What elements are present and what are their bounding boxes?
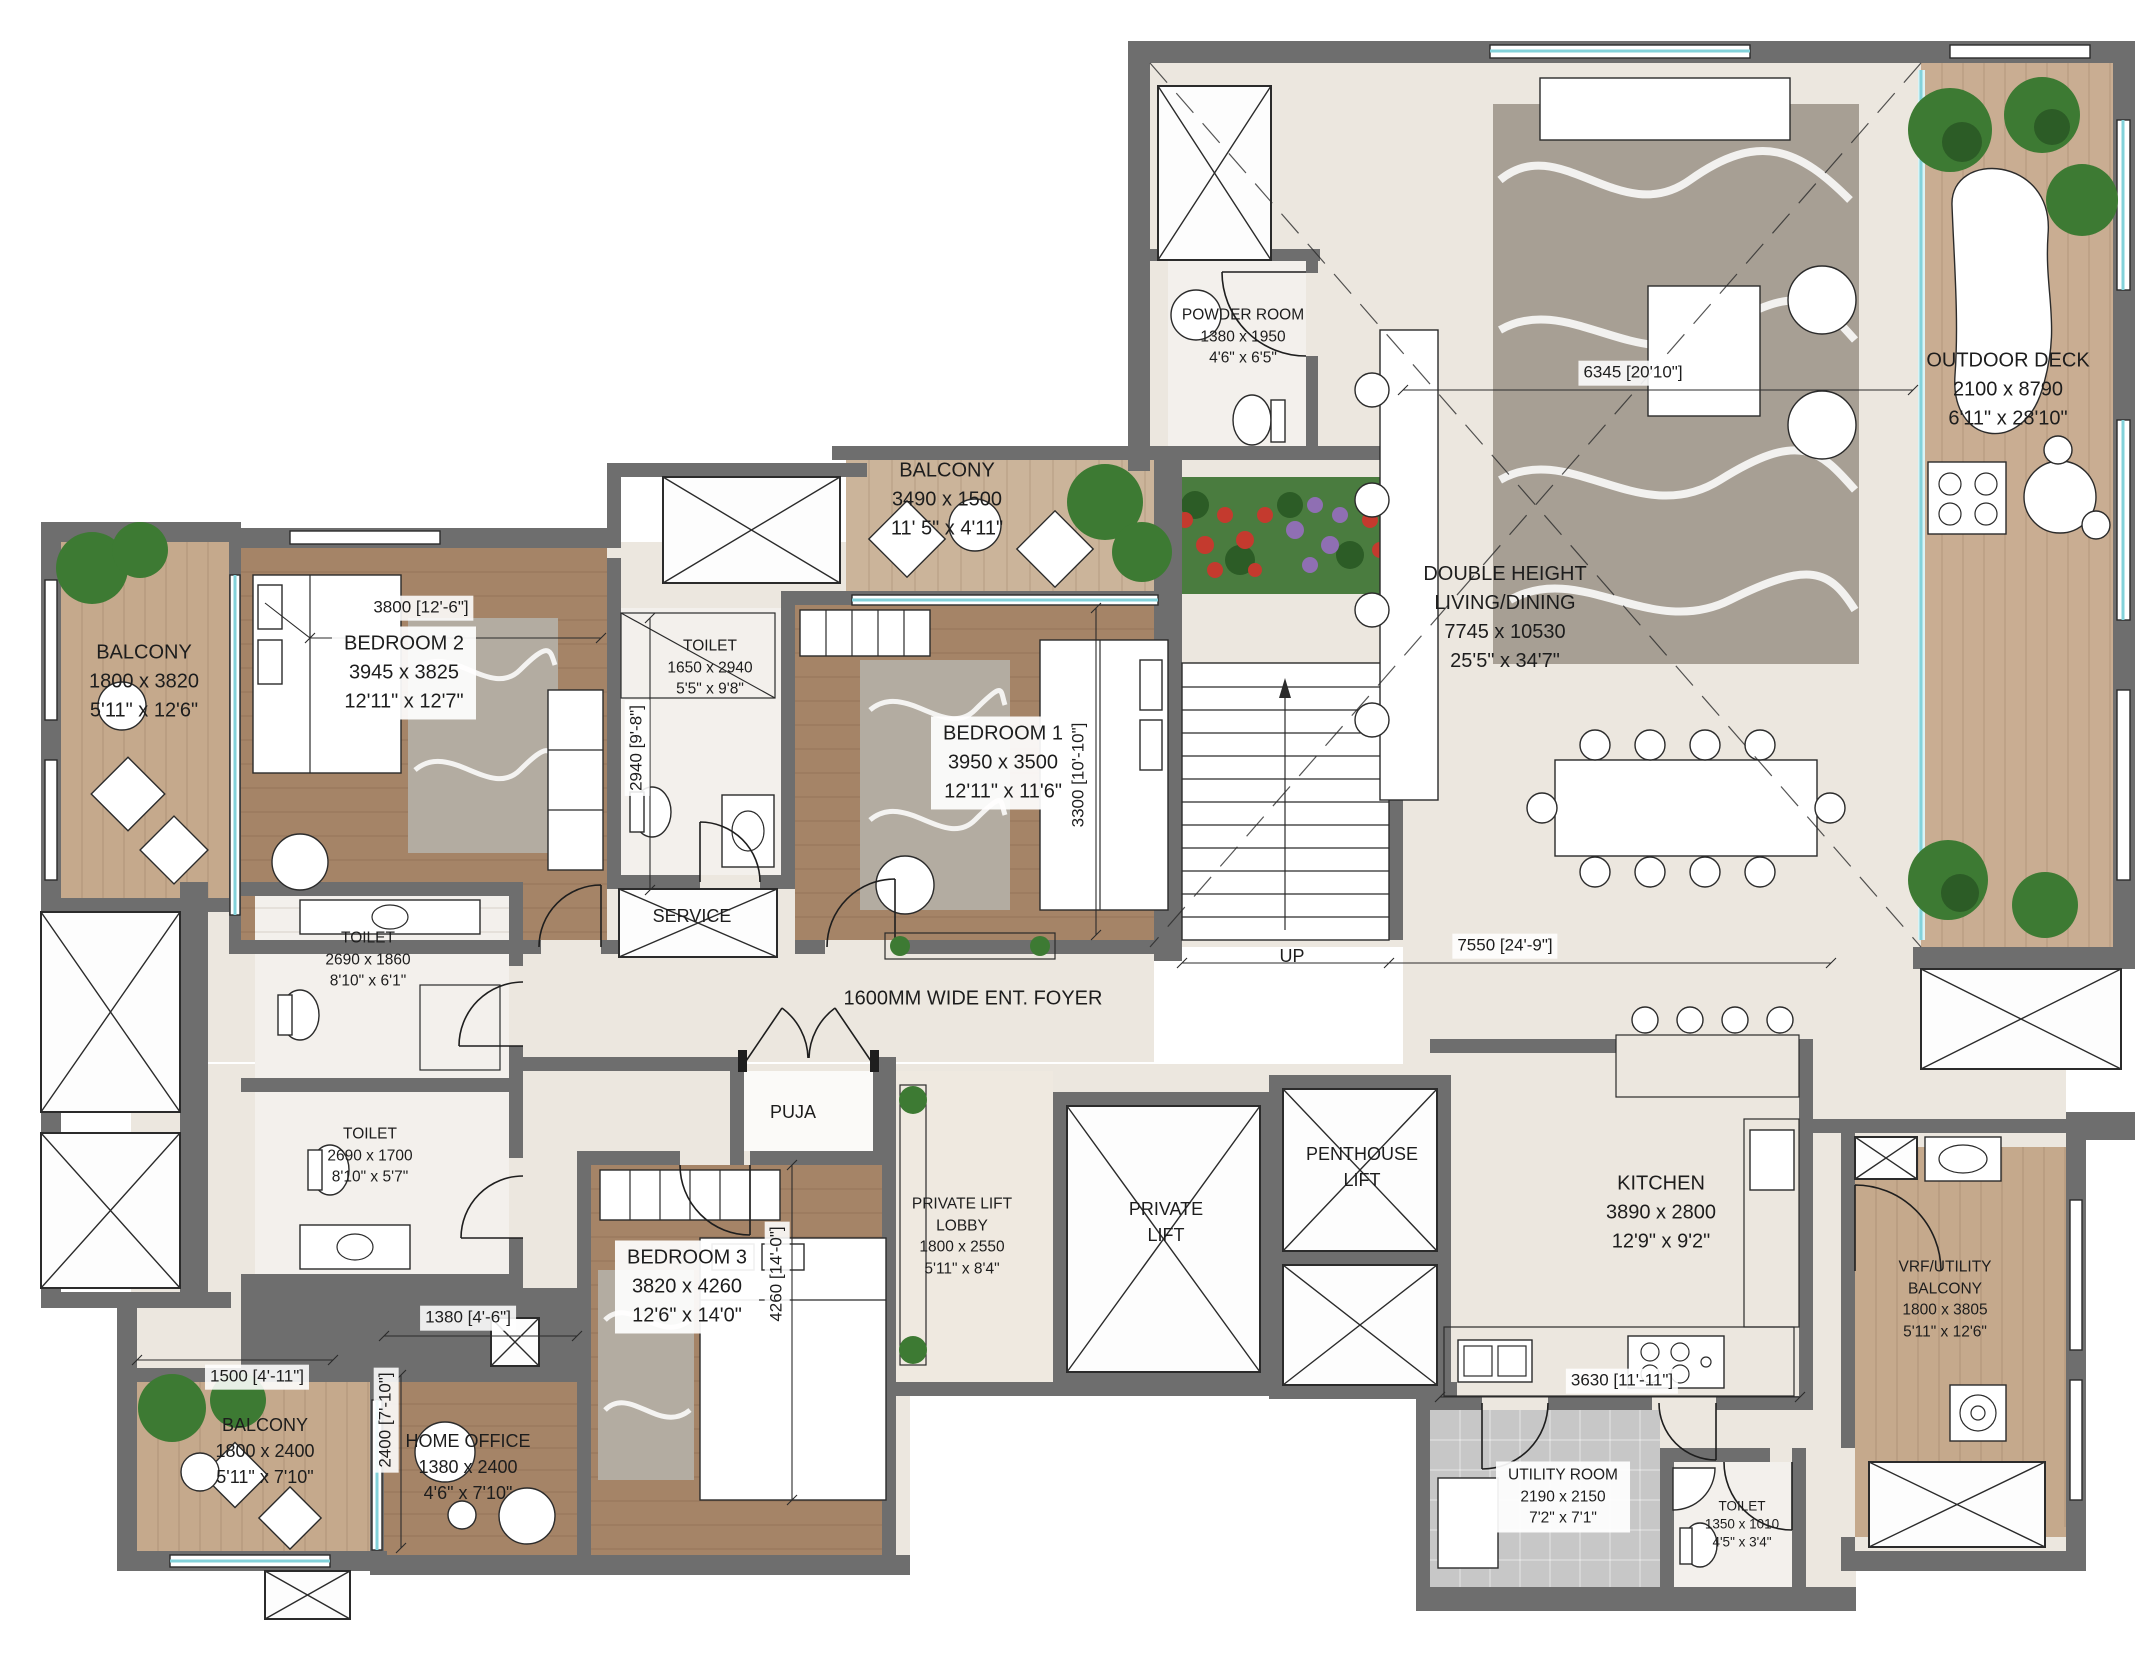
bedroom2-furniture xyxy=(253,575,603,890)
stool xyxy=(1767,1007,1793,1033)
dining-chair xyxy=(1635,730,1665,760)
pillow xyxy=(1140,720,1162,770)
tree xyxy=(2046,164,2118,236)
room-label-private-lift: PRIVATELIFT xyxy=(1129,1196,1203,1248)
dim-label-2400: 2400 [7'-10"] xyxy=(374,1367,399,1472)
label-up: UP xyxy=(1279,943,1304,969)
room-label-balcony-top: BALCONY3490 x 150011' 5" x 4'11" xyxy=(891,457,1003,544)
duct-shaft xyxy=(1855,1137,1917,1179)
dim-label-1380: 1380 [4'-6"] xyxy=(420,1306,516,1331)
dim-label-7550: 7550 [24'-9"] xyxy=(1452,934,1557,959)
duct-shaft xyxy=(1158,86,1271,260)
table xyxy=(181,1453,219,1491)
room-label-outdoor-deck: OUTDOOR DECK2100 x 87906'11" x 28'10" xyxy=(1926,347,2089,434)
dim-label-4260: 4260 [14'-0"] xyxy=(765,1221,790,1326)
room-label-vrf-balcony: VRF/UTILITYBALCONY 1800 x 38055'11" x 12… xyxy=(1898,1257,1991,1344)
room-label-bedroom-1: BEDROOM 13950 x 350012'11" x 11'6" xyxy=(931,717,1075,810)
dining-chair xyxy=(1580,730,1610,760)
wardrobe xyxy=(548,690,603,870)
lift-shaft xyxy=(1283,1265,1437,1385)
dining-chair xyxy=(1635,857,1665,887)
dim-label-3800: 3800 [12'-6"] xyxy=(368,596,473,621)
stool xyxy=(1722,1007,1748,1033)
label-entry-foyer: 1600MM WIDE ENT. FOYER xyxy=(844,985,1103,1014)
plant xyxy=(890,936,910,956)
fridge xyxy=(1750,1130,1794,1190)
plant xyxy=(1030,936,1050,956)
room-label-balcony-left: BALCONY1800 x 38205'11" x 12'6" xyxy=(89,639,199,726)
pillow xyxy=(258,640,282,684)
stool xyxy=(1355,703,1389,737)
dining-chair xyxy=(1745,730,1775,760)
room-label-toilet-master: TOILET1650 x 29405'5" x 9'8" xyxy=(667,635,752,700)
armchair xyxy=(1788,266,1856,334)
dining-chair xyxy=(1690,730,1720,760)
plant xyxy=(899,1086,927,1114)
duct-shaft xyxy=(663,477,840,583)
appliance xyxy=(1438,1478,1498,1568)
room-label-lift-lobby: PRIVATE LIFTLOBBY 1800 x 25505'11" x 8'4… xyxy=(912,1194,1012,1281)
dim-label-6345: 6345 [20'10"] xyxy=(1578,361,1687,386)
stool xyxy=(1632,1007,1658,1033)
duct-shaft xyxy=(1921,969,2121,1069)
dining-chair xyxy=(1580,857,1610,887)
dining-chair xyxy=(1527,793,1557,823)
floor-plan: OUTDOOR DECK2100 x 87906'11" x 28'10" PO… xyxy=(0,0,2155,1659)
plant xyxy=(899,1336,927,1364)
wardrobe xyxy=(800,610,930,656)
room-label-penthouse-lift: PENTHOUSELIFT xyxy=(1306,1141,1418,1193)
room-label-service: SERVICE xyxy=(653,903,732,929)
dim-label-2940: 2940 [9'-8"] xyxy=(625,700,650,796)
stool xyxy=(1355,373,1389,407)
vanity xyxy=(300,1225,410,1269)
armchair xyxy=(876,856,934,914)
armchair xyxy=(272,834,328,890)
room-label-puja: PUJA xyxy=(770,1099,816,1125)
room-label-utility: UTILITY ROOM2190 x 21507'2" x 7'1" xyxy=(1496,1461,1630,1532)
stool xyxy=(1355,593,1389,627)
deck-chair xyxy=(2082,511,2110,539)
room-label-toilet-bottom: TOILET1350 x 10104'5" x 3'4" xyxy=(1705,1498,1779,1553)
room-label-bedroom-2: BEDROOM 23945 x 382512'11" x 12'7" xyxy=(332,627,476,720)
tree xyxy=(2012,872,2078,938)
room-label-living-dining: DOUBLE HEIGHTLIVING/DINING 7745 x 105302… xyxy=(1423,560,1586,676)
pillow xyxy=(1140,660,1162,710)
coffee-table xyxy=(1648,286,1760,416)
armchair xyxy=(1788,391,1856,459)
dining-table xyxy=(1555,760,1817,856)
room-label-home-office: HOME OFFICE1380 x 24004'6" x 7'10" xyxy=(406,1428,531,1506)
dining-chair xyxy=(1815,793,1845,823)
toilet-wc xyxy=(1233,395,1271,445)
dining-chair xyxy=(1690,857,1720,887)
stool xyxy=(1355,483,1389,517)
tree xyxy=(138,1374,206,1442)
room-label-toilet-mid1: TOILET2690 x 18608'10" x 6'1" xyxy=(325,927,410,992)
room-label-kitchen: KITCHEN3890 x 280012'9" x 9'2" xyxy=(1606,1170,1716,1257)
deck-chair xyxy=(2044,436,2072,464)
washing-machine xyxy=(1950,1385,2006,1441)
staircase xyxy=(1182,663,1389,940)
duct-shaft xyxy=(1869,1462,2045,1547)
dining-chair xyxy=(1745,857,1775,887)
stool xyxy=(1677,1007,1703,1033)
lift-shaft xyxy=(41,1133,180,1288)
dim-label-3300: 3300 [10'-10"] xyxy=(1067,718,1092,833)
dim-label-3630: 3630 [11'-11"] xyxy=(1566,1369,1678,1394)
deck-stove xyxy=(1928,462,2006,534)
sofa xyxy=(1540,78,1790,140)
lift-shaft xyxy=(41,912,180,1112)
room-label-bedroom-3: BEDROOM 33820 x 426012'6" x 14'0" xyxy=(615,1241,759,1334)
room-label-powder-room: POWDER ROOM1380 x 19504'6" x 6'5" xyxy=(1182,304,1304,369)
room-label-toilet-mid2: TOILET2690 x 17008'10" x 5'7" xyxy=(327,1123,412,1188)
room-label-balcony-bottom: BALCONY1800 x 24005'11" x 7'10" xyxy=(215,1412,314,1490)
duct-shaft xyxy=(265,1571,350,1619)
dim-label-1500: 1500 [4'-11"] xyxy=(205,1365,309,1390)
utility-sink xyxy=(1925,1137,2001,1181)
vanity xyxy=(722,795,774,867)
